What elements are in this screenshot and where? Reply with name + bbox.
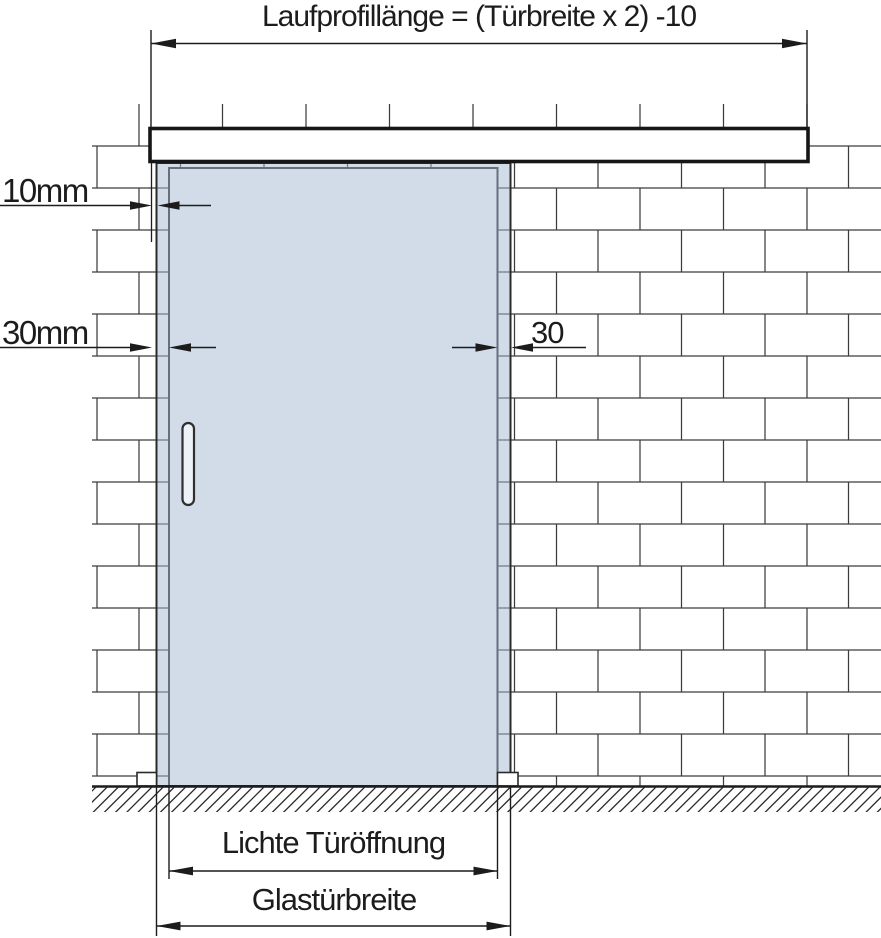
track-length-formula-label: Laufprofillänge = (Türbreite x 2) -10 <box>150 1 808 33</box>
dim-label-30mm: 30mm <box>2 316 88 351</box>
door-handle <box>183 423 195 505</box>
track-profile <box>150 129 808 162</box>
dim-track-length <box>151 30 807 127</box>
drawing-canvas <box>0 0 881 938</box>
dim-label-30: 30 <box>531 317 563 350</box>
dim-label-glass-door-width: Glastürbreite <box>157 884 511 917</box>
floor-guide-left <box>137 773 157 787</box>
floor-guide-right <box>498 773 519 787</box>
dim-label-clear-opening: Lichte Türöffnung <box>169 827 498 860</box>
ground-hatch <box>70 786 881 813</box>
dim-label-10mm: 10mm <box>2 174 88 209</box>
glass-door-panel <box>157 163 511 786</box>
technical-drawing-sliding-door: Laufprofillänge = (Türbreite x 2) -10 10… <box>0 0 881 938</box>
